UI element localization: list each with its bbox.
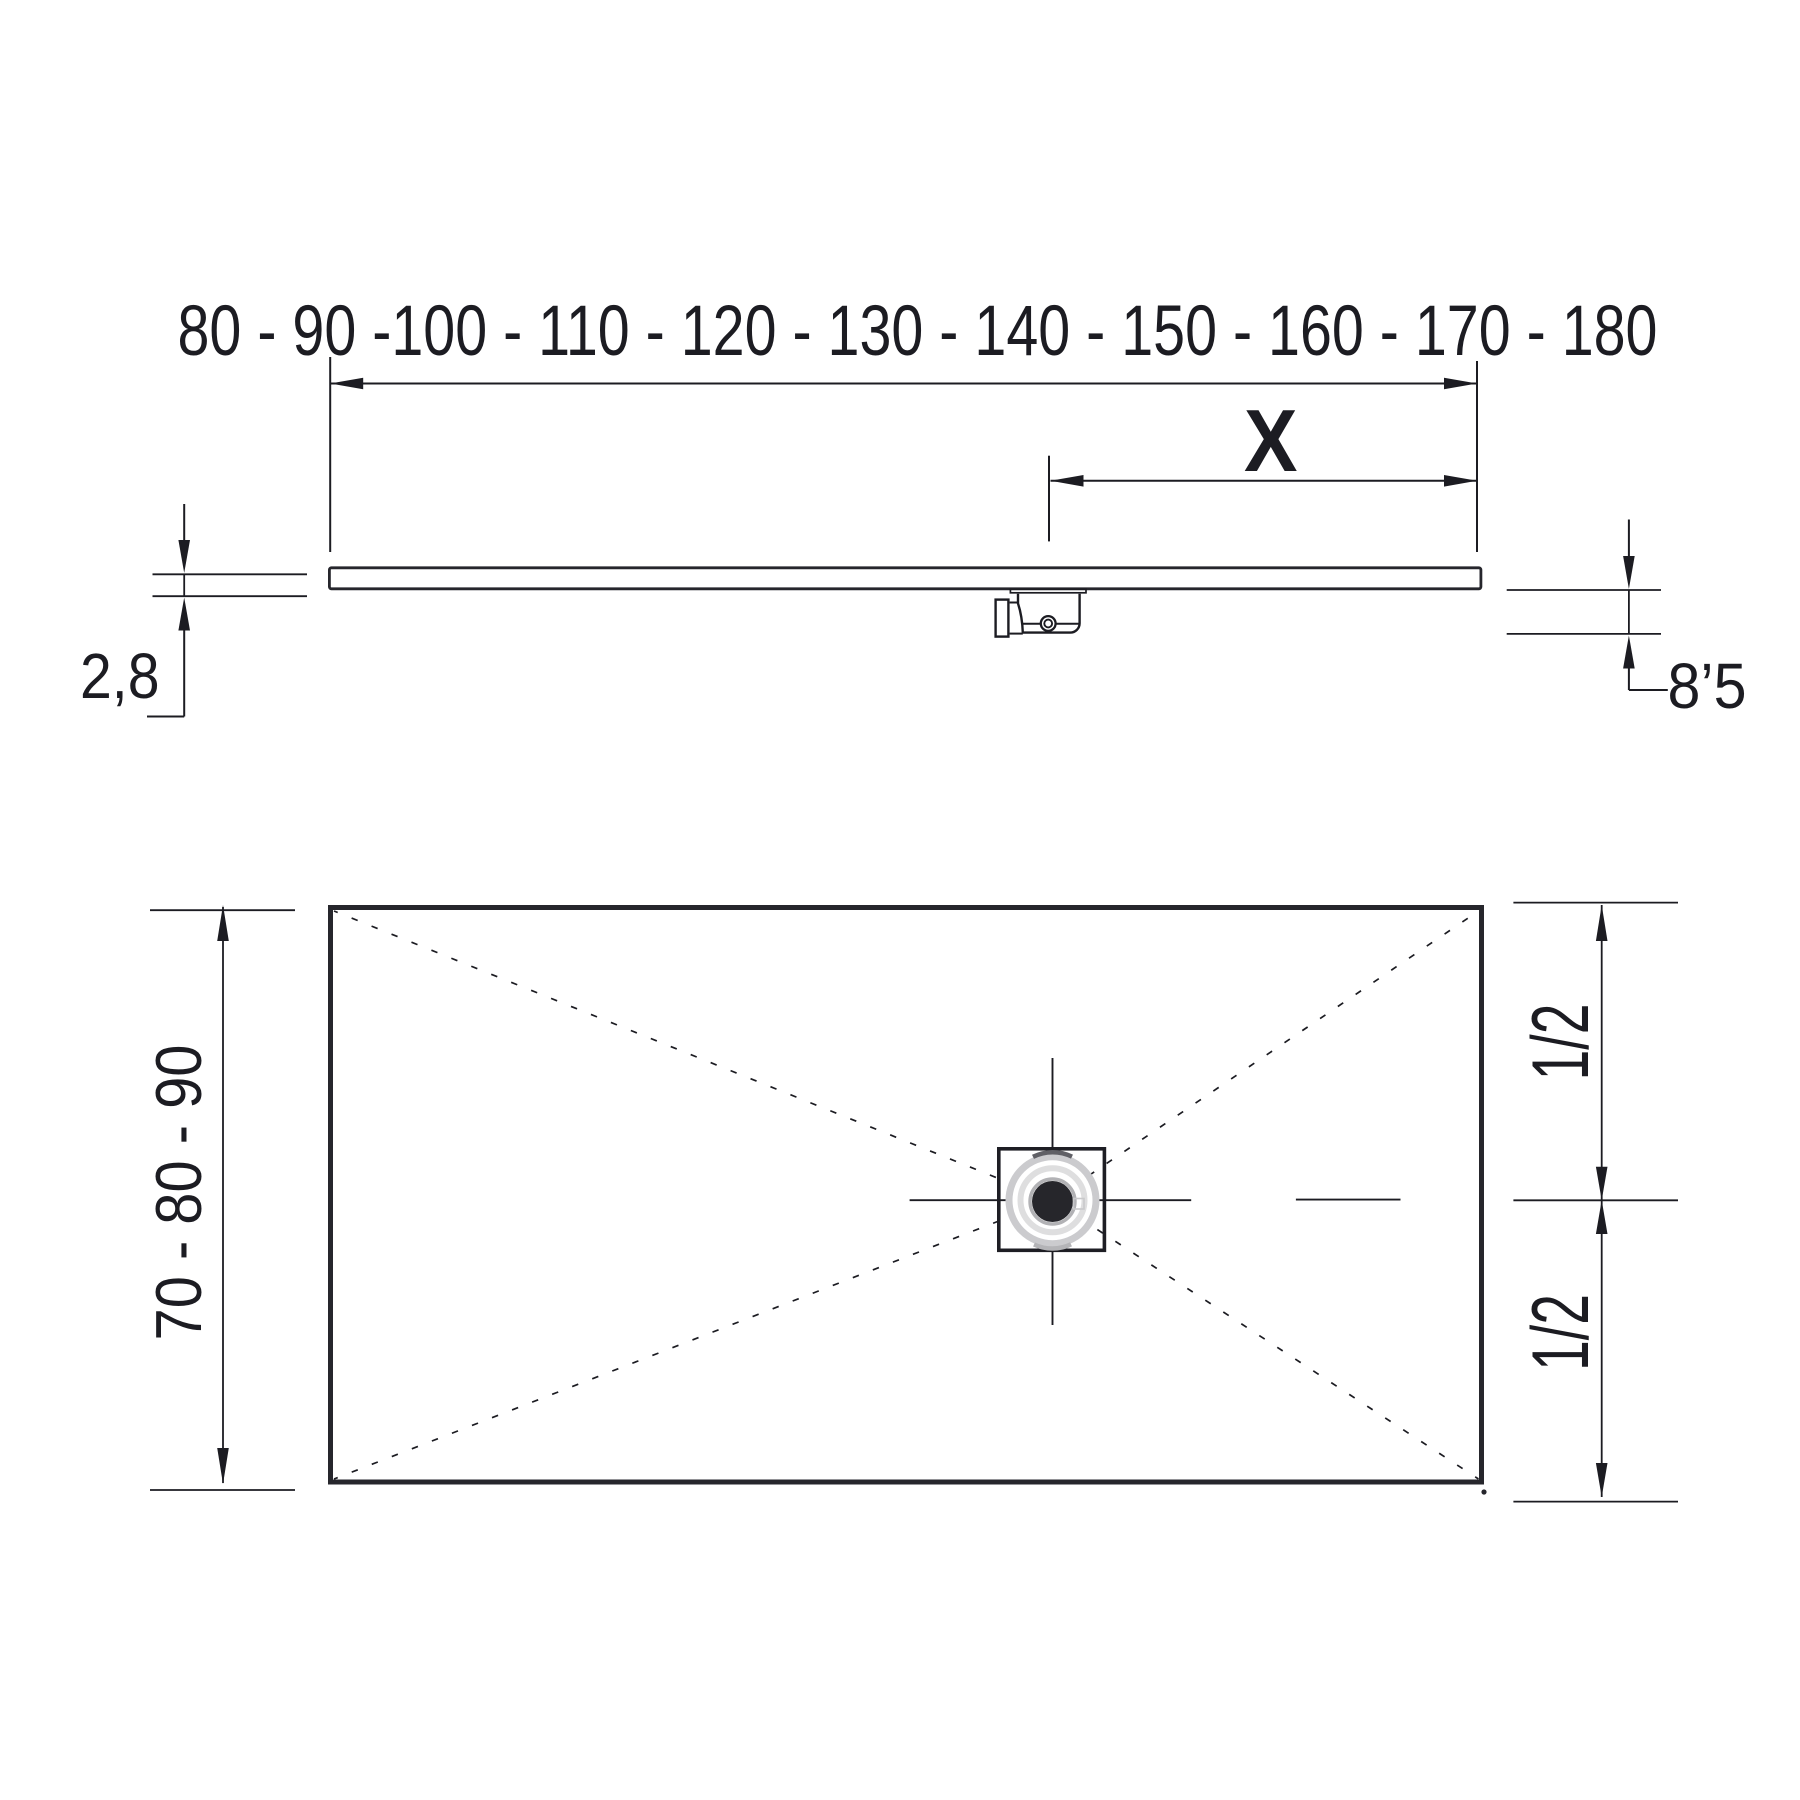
svg-text:2,8: 2,8 <box>80 640 160 712</box>
svg-text:X: X <box>1244 391 1298 490</box>
svg-text:8’5: 8’5 <box>1668 650 1747 722</box>
svg-text:70 - 80 - 90: 70 - 80 - 90 <box>143 1045 215 1341</box>
svg-text:1/2: 1/2 <box>1516 1294 1606 1371</box>
svg-text:80 - 90 -100 - 110 - 120 - 130: 80 - 90 -100 - 110 - 120 - 130 - 140 - 1… <box>178 292 1658 371</box>
svg-text:1/2: 1/2 <box>1516 1004 1606 1081</box>
